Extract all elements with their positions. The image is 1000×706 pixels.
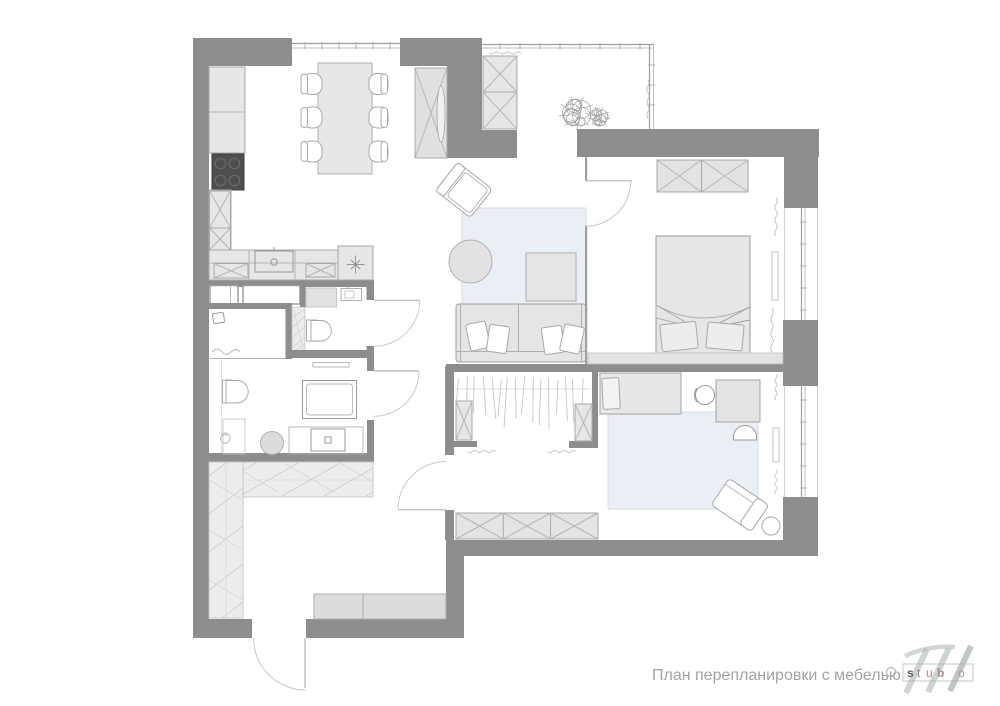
svg-text:o: o xyxy=(958,666,965,680)
svg-text:s: s xyxy=(907,666,914,680)
svg-text:План перепланировки с мебелью: План перепланировки с мебелью xyxy=(652,667,901,684)
svg-text:u: u xyxy=(926,666,933,680)
svg-text:b: b xyxy=(937,666,944,680)
